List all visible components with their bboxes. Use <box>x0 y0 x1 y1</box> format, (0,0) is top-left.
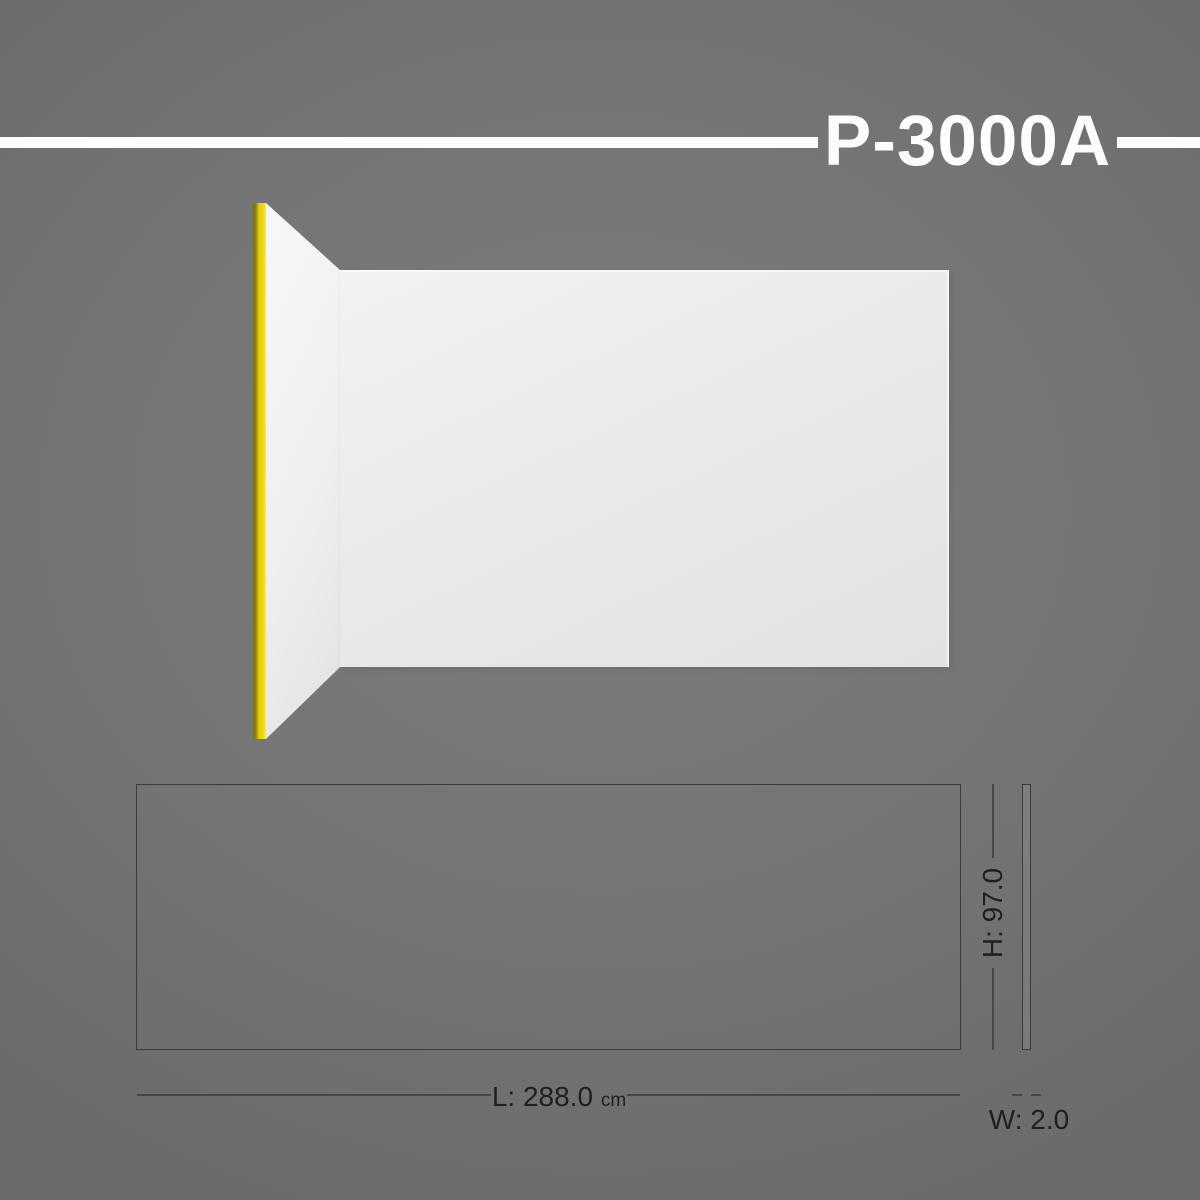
length-dimension-line-left <box>137 1094 491 1096</box>
length-dimension-label: L: 288.0 cm <box>459 1082 659 1116</box>
width-dimension-label: W: 2.0 <box>969 1105 1089 1135</box>
height-dimension-line-bottom <box>992 968 994 1050</box>
page-title: P-3000A <box>818 104 1117 180</box>
panel-front-face <box>340 270 949 667</box>
width-dimension-tick-left <box>1012 1094 1022 1096</box>
width-dimension-tick-right <box>1031 1094 1041 1096</box>
title-rule-left <box>0 137 818 148</box>
height-dimension-line-top <box>992 784 994 858</box>
length-value: L: 288.0 <box>492 1081 593 1112</box>
front-view-outline <box>136 784 961 1050</box>
width-profile-outline <box>1022 784 1031 1050</box>
length-unit: cm <box>601 1090 626 1111</box>
length-dimension-line-right <box>627 1094 960 1096</box>
height-dimension-label: H: 97.0 <box>978 853 1008 973</box>
edge-accent-strip <box>253 203 266 739</box>
title-rule-right <box>1117 137 1200 148</box>
product-sheet: P-3000A H: 97.0 L: 288.0 cm W: 2.0 <box>0 0 1200 1200</box>
panel-side-face <box>266 203 340 739</box>
